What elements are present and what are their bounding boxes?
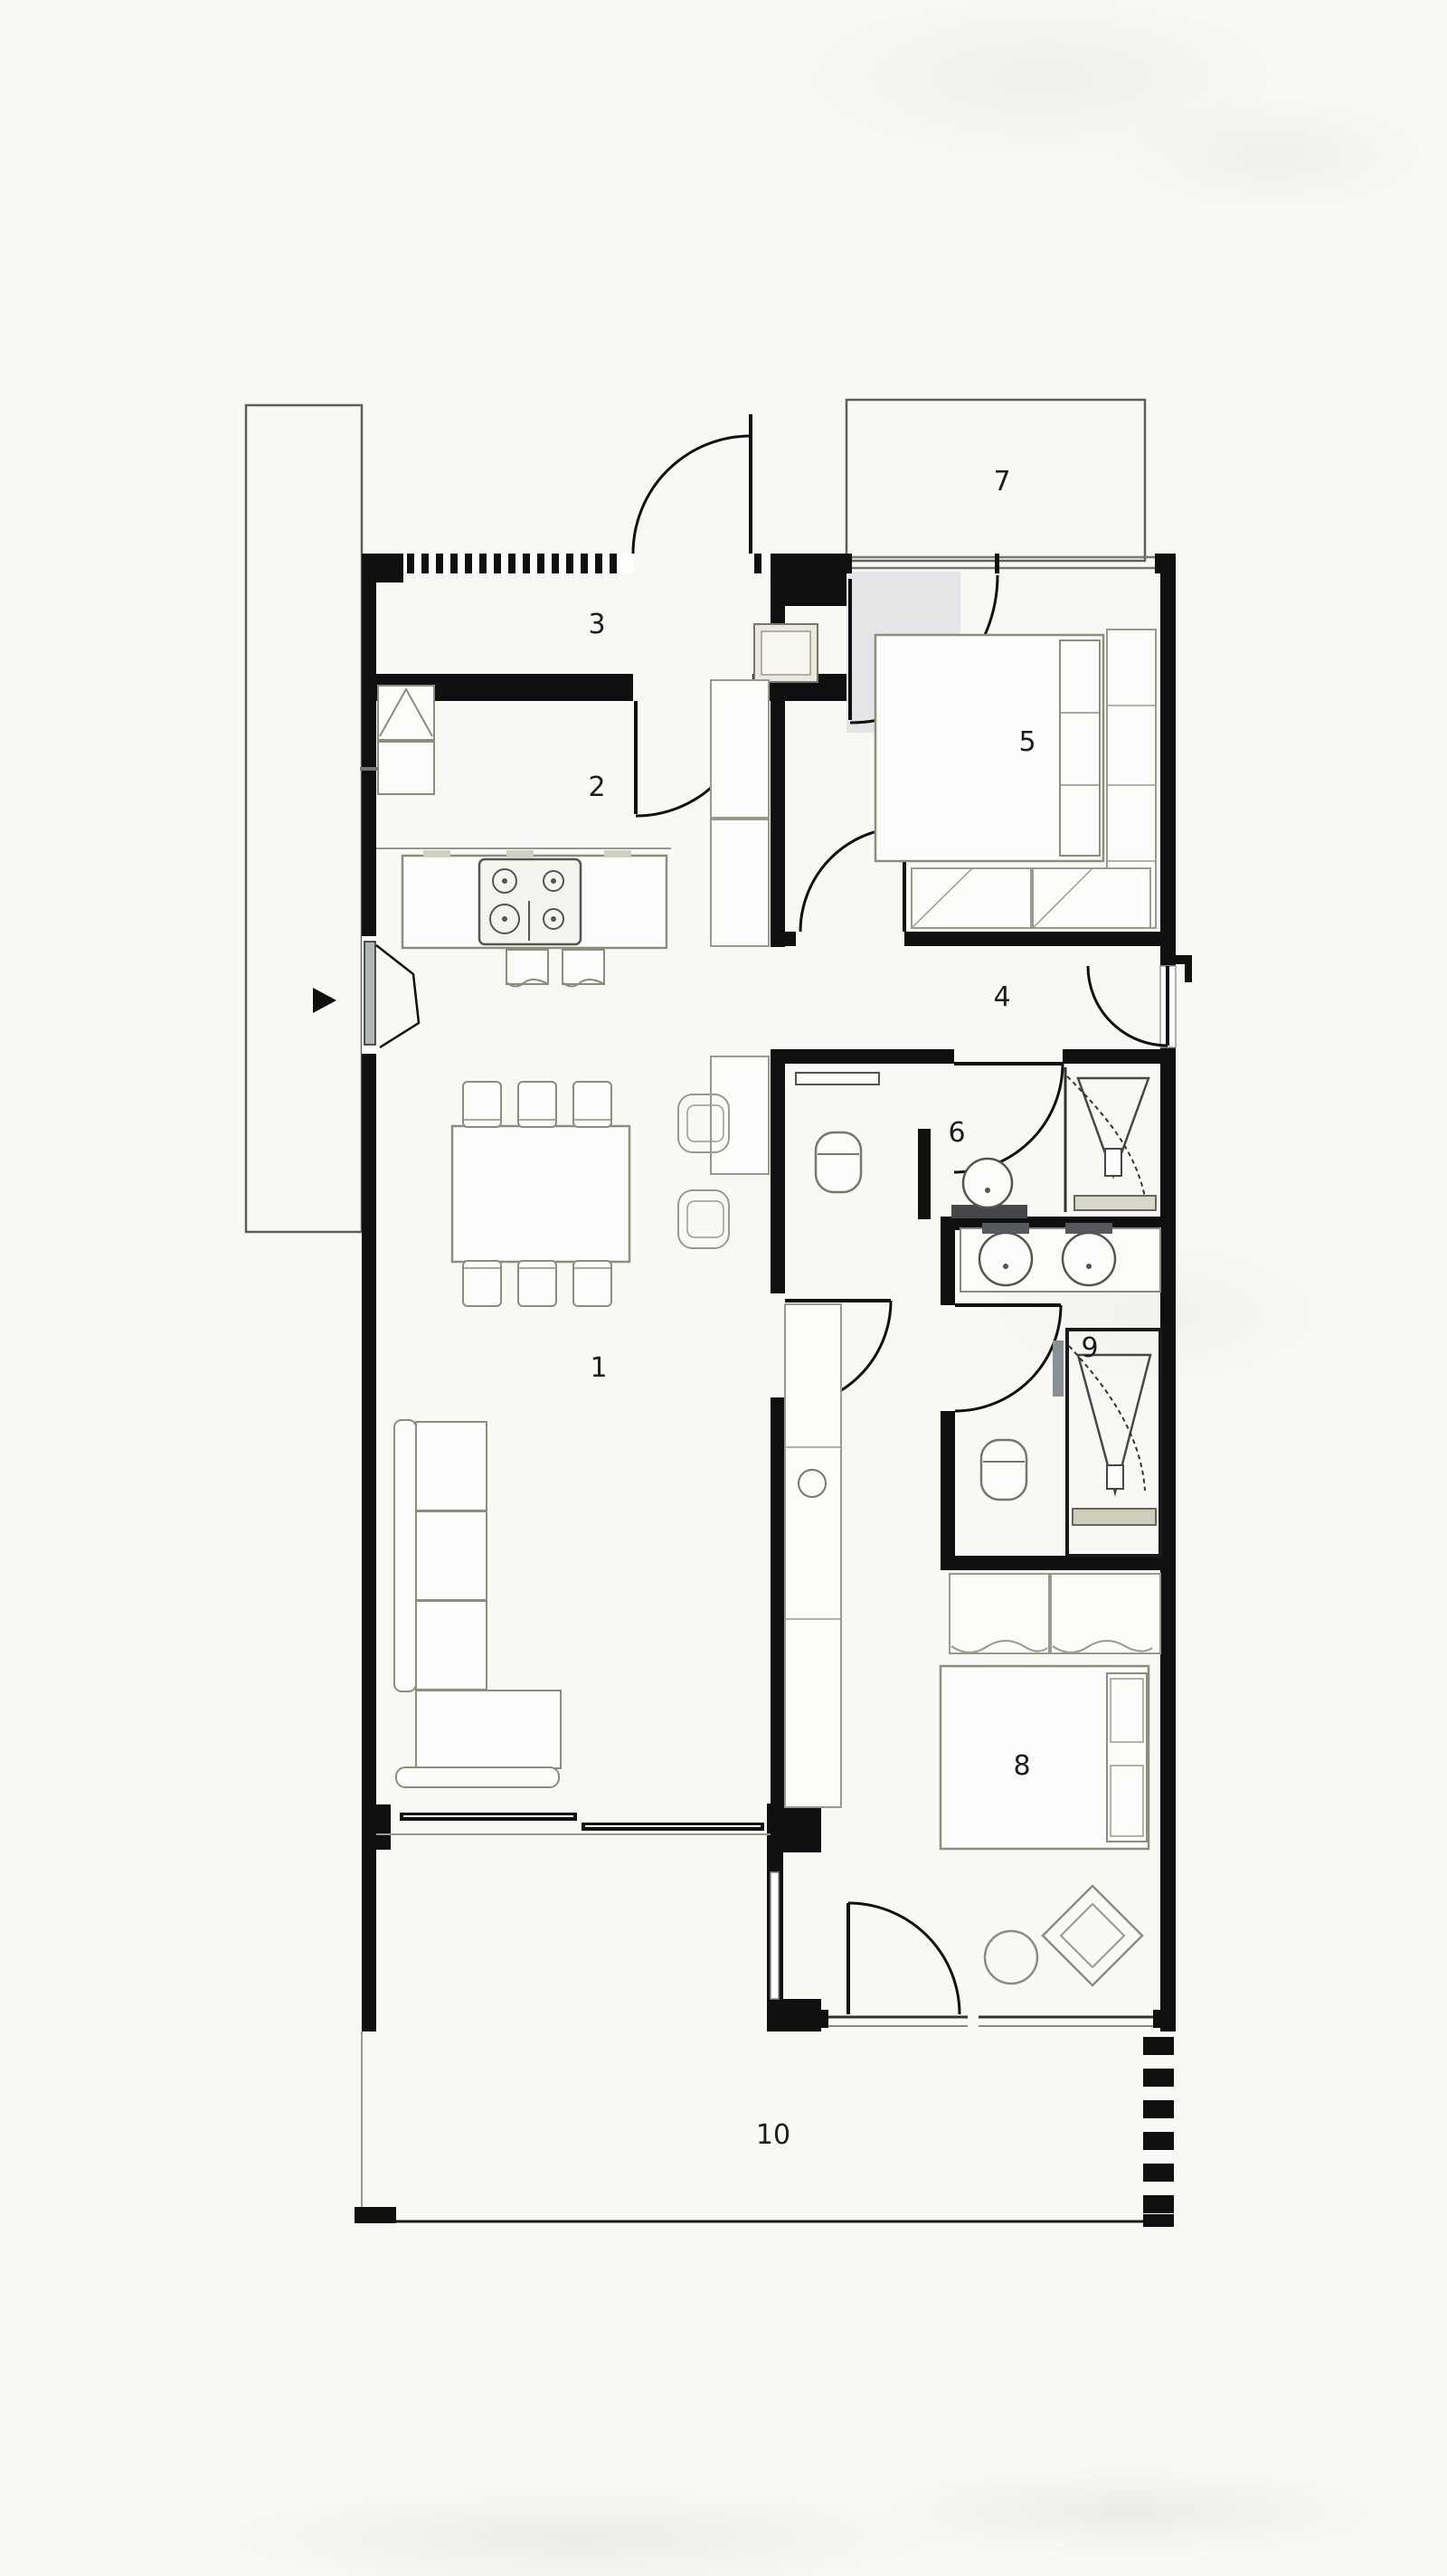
toilet-icon — [816, 1132, 861, 1192]
wall-spine-lower — [771, 1397, 785, 1804]
dresser-room5 — [912, 868, 1150, 928]
bar-stool — [506, 950, 548, 987]
door-room6 — [954, 1064, 1063, 1172]
closet-strip — [711, 680, 769, 1174]
dining-chair — [518, 1082, 556, 1127]
towel-rail-icon — [796, 1073, 879, 1084]
wall-room8-post — [767, 1999, 821, 2031]
svg-text:4: 4 — [993, 981, 1010, 1013]
cooktop-icon — [479, 859, 581, 944]
door-room8 — [848, 1903, 960, 2014]
living-sliding-door — [376, 1804, 771, 1850]
wall-stub-bath6 — [918, 1129, 931, 1219]
dashed-boundary — [1143, 2037, 1174, 2227]
floor-plan-page: 12345678910 — [0, 0, 1447, 2576]
vanity-two-sinks — [960, 1223, 1160, 1292]
entrance-door — [362, 936, 419, 1054]
wall-right-lower — [1160, 1047, 1176, 2031]
right-door-frame — [1160, 955, 1192, 1047]
wall-room9-left-b — [941, 1411, 955, 1556]
dining-table — [452, 1126, 629, 1262]
svg-text:7: 7 — [993, 466, 1010, 497]
armchair — [678, 1190, 729, 1248]
wall-spine-middle — [771, 1056, 785, 1293]
room-label: 2 — [588, 772, 605, 803]
wall-room4-room6-b — [1063, 1049, 1160, 1064]
window-room8-left — [771, 1872, 779, 1999]
toilet-icon — [981, 1440, 1026, 1500]
room3-cabinet — [754, 624, 818, 682]
wall-room5-room4-a — [771, 932, 796, 946]
wall-right-upper — [1160, 554, 1176, 966]
wardrobe-room8 — [950, 1574, 1160, 1653]
window-top-bedroom5 — [846, 554, 1160, 573]
terrace-10-outline — [355, 2031, 1145, 2223]
hatched-wall-top — [403, 554, 771, 573]
dining-chair — [518, 1261, 556, 1306]
room-label: 9 — [1081, 1332, 1098, 1364]
svg-text:2: 2 — [588, 772, 605, 803]
wall-room4-room6-a — [771, 1049, 954, 1064]
shower-icon — [1065, 1067, 1156, 1212]
wall-left-lower — [362, 1054, 376, 2031]
room-label: 4 — [993, 981, 1010, 1013]
svg-text:6: 6 — [948, 1117, 965, 1149]
wall-room5-room4-b — [904, 932, 1160, 946]
bar-stool — [563, 950, 604, 987]
room-label: 1 — [590, 1352, 607, 1384]
door-terrace-top — [633, 414, 751, 554]
door-room9 — [955, 1305, 1061, 1411]
wall-top-center-block — [771, 554, 846, 606]
wall-corner-block — [767, 1804, 821, 1852]
shower-icon — [1053, 1330, 1160, 1556]
svg-text:1: 1 — [590, 1352, 607, 1384]
floor-plan-canvas: 12345678910 — [0, 0, 1447, 2576]
svg-text:8: 8 — [1013, 1750, 1030, 1782]
dining-chair — [573, 1261, 611, 1306]
room-label: 8 — [1013, 1750, 1030, 1782]
dining-chair — [573, 1082, 611, 1127]
door-room4-exterior — [1088, 966, 1168, 1046]
wall-room9-left-a — [941, 1230, 955, 1305]
bed-room5 — [875, 635, 1103, 861]
room-label: 3 — [588, 609, 605, 640]
svg-text:9: 9 — [1081, 1332, 1098, 1364]
bed-room8 — [941, 1666, 1149, 1849]
room-label: 10 — [756, 2119, 790, 2151]
lounge-chair-icon — [1043, 1886, 1142, 1985]
carport-outline — [246, 405, 362, 1232]
pouf-icon — [985, 1931, 1037, 1984]
wall-left-upper — [362, 554, 376, 936]
room-label: 6 — [948, 1117, 965, 1149]
dining-chair — [463, 1082, 501, 1127]
sofa — [394, 1420, 561, 1787]
room-label: 5 — [1018, 726, 1036, 758]
wall-room9-room8 — [941, 1556, 1160, 1570]
dining-chair — [463, 1261, 501, 1306]
entrance-arrow-icon — [313, 988, 336, 1013]
svg-text:10: 10 — [756, 2119, 790, 2151]
room-label: 7 — [993, 466, 1010, 497]
sink-icon — [951, 1159, 1027, 1218]
room8-sliding-door — [821, 2010, 1160, 2030]
svg-text:5: 5 — [1018, 726, 1036, 758]
svg-text:3: 3 — [588, 609, 605, 640]
hall-cabinet — [785, 1304, 841, 1807]
